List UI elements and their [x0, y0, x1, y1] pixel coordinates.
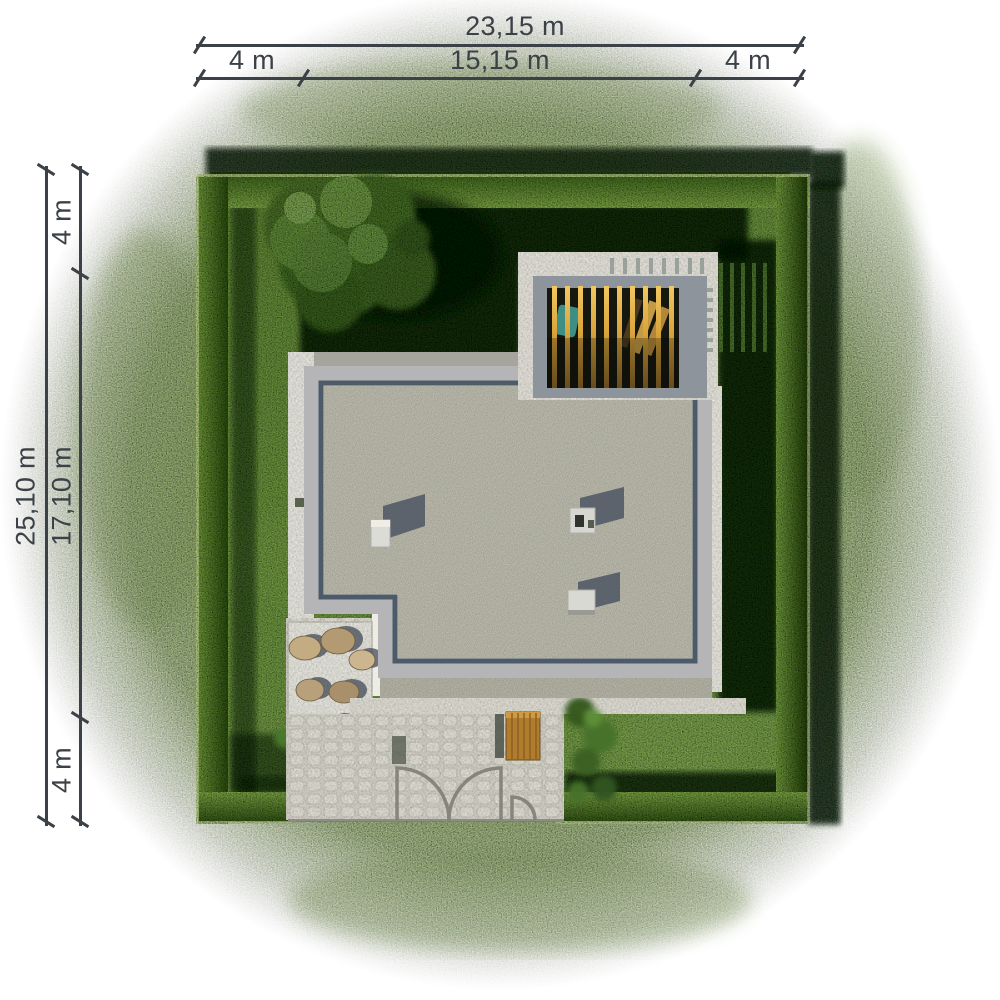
property-line — [288, 819, 564, 822]
pergola-inner-shade — [547, 338, 679, 388]
door-side-shadow — [495, 714, 504, 758]
entrance-walkway — [350, 698, 746, 714]
roof-lower-band — [380, 678, 712, 698]
pergola — [518, 252, 718, 400]
site-rendering — [0, 0, 1000, 1000]
front-door — [506, 712, 540, 760]
doormat-shadow — [392, 736, 406, 764]
site-plan-canvas: 23,15 m 4 m 15,15 m 4 m 25,10 m 4 m 17,1… — [0, 0, 1000, 1000]
drain-spot — [295, 498, 304, 507]
